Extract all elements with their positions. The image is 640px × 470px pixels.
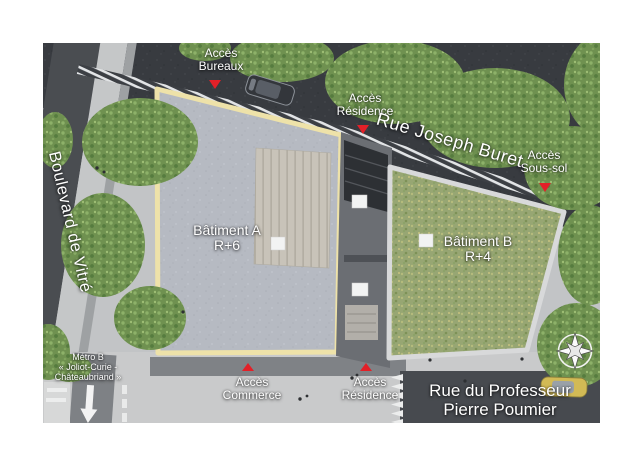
site-plan-image: AccèsBureaux AccèsRésidence Rue Joseph B…: [0, 0, 640, 470]
roof-skylight: [352, 283, 368, 296]
aerial-scene: [43, 43, 600, 423]
roof-skylight: [419, 234, 433, 247]
courtyard-gap: [336, 132, 392, 368]
roof-deck: [254, 148, 331, 268]
aerial-render: [43, 43, 600, 423]
yellow-car-icon: [541, 377, 588, 398]
roof-skylight: [271, 237, 285, 250]
crosswalk-bar: [46, 398, 66, 402]
lane-dashes: [122, 385, 127, 422]
crosswalk-bar: [47, 388, 67, 392]
roof-skylight: [352, 195, 367, 208]
